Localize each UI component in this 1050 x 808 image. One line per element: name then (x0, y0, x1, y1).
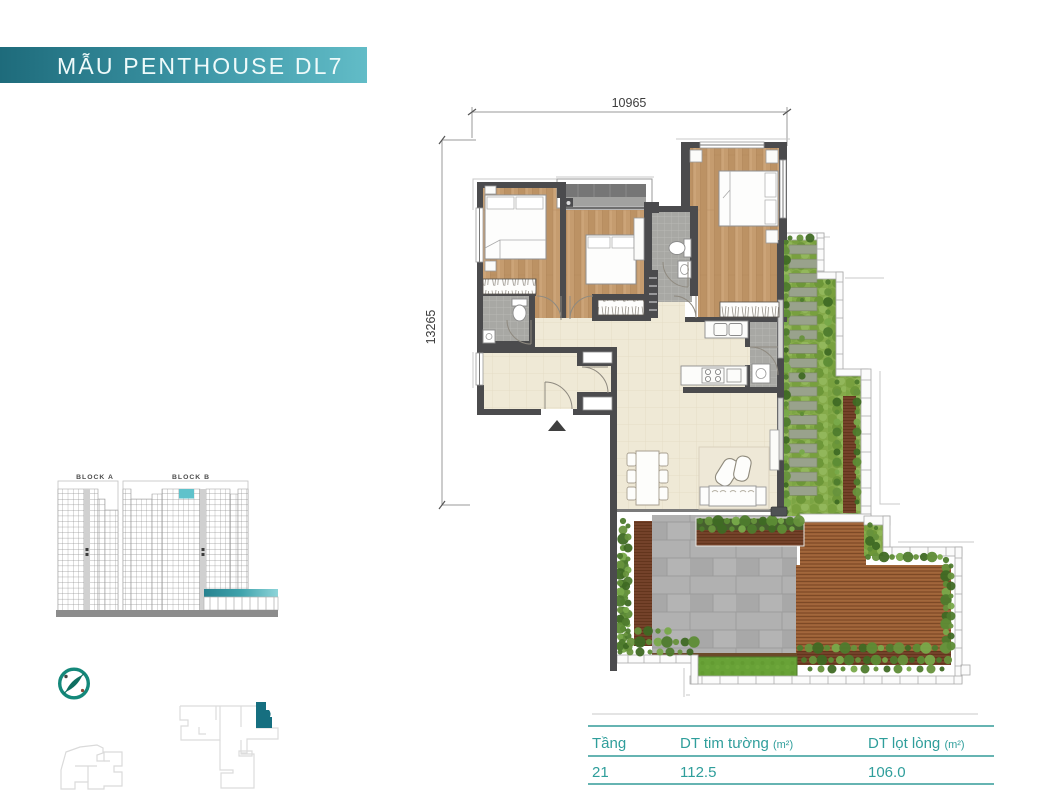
svg-text:10965: 10965 (612, 96, 647, 110)
svg-text:13265: 13265 (424, 310, 438, 345)
svg-text:106.0: 106.0 (868, 764, 906, 781)
svg-text:DT tim tường (m²): DT tim tường (m²) (680, 735, 793, 752)
svg-text:MẪU PENTHOUSE DL7: MẪU PENTHOUSE DL7 (57, 51, 344, 79)
svg-text:BLOCK B: BLOCK B (172, 474, 210, 481)
svg-text:BLOCK A: BLOCK A (76, 474, 114, 481)
svg-text:112.5: 112.5 (680, 764, 716, 781)
svg-text:21: 21 (592, 764, 609, 781)
svg-text:DT lọt lòng (m²): DT lọt lòng (m²) (868, 735, 965, 752)
svg-text:Tầng: Tầng (592, 735, 626, 752)
